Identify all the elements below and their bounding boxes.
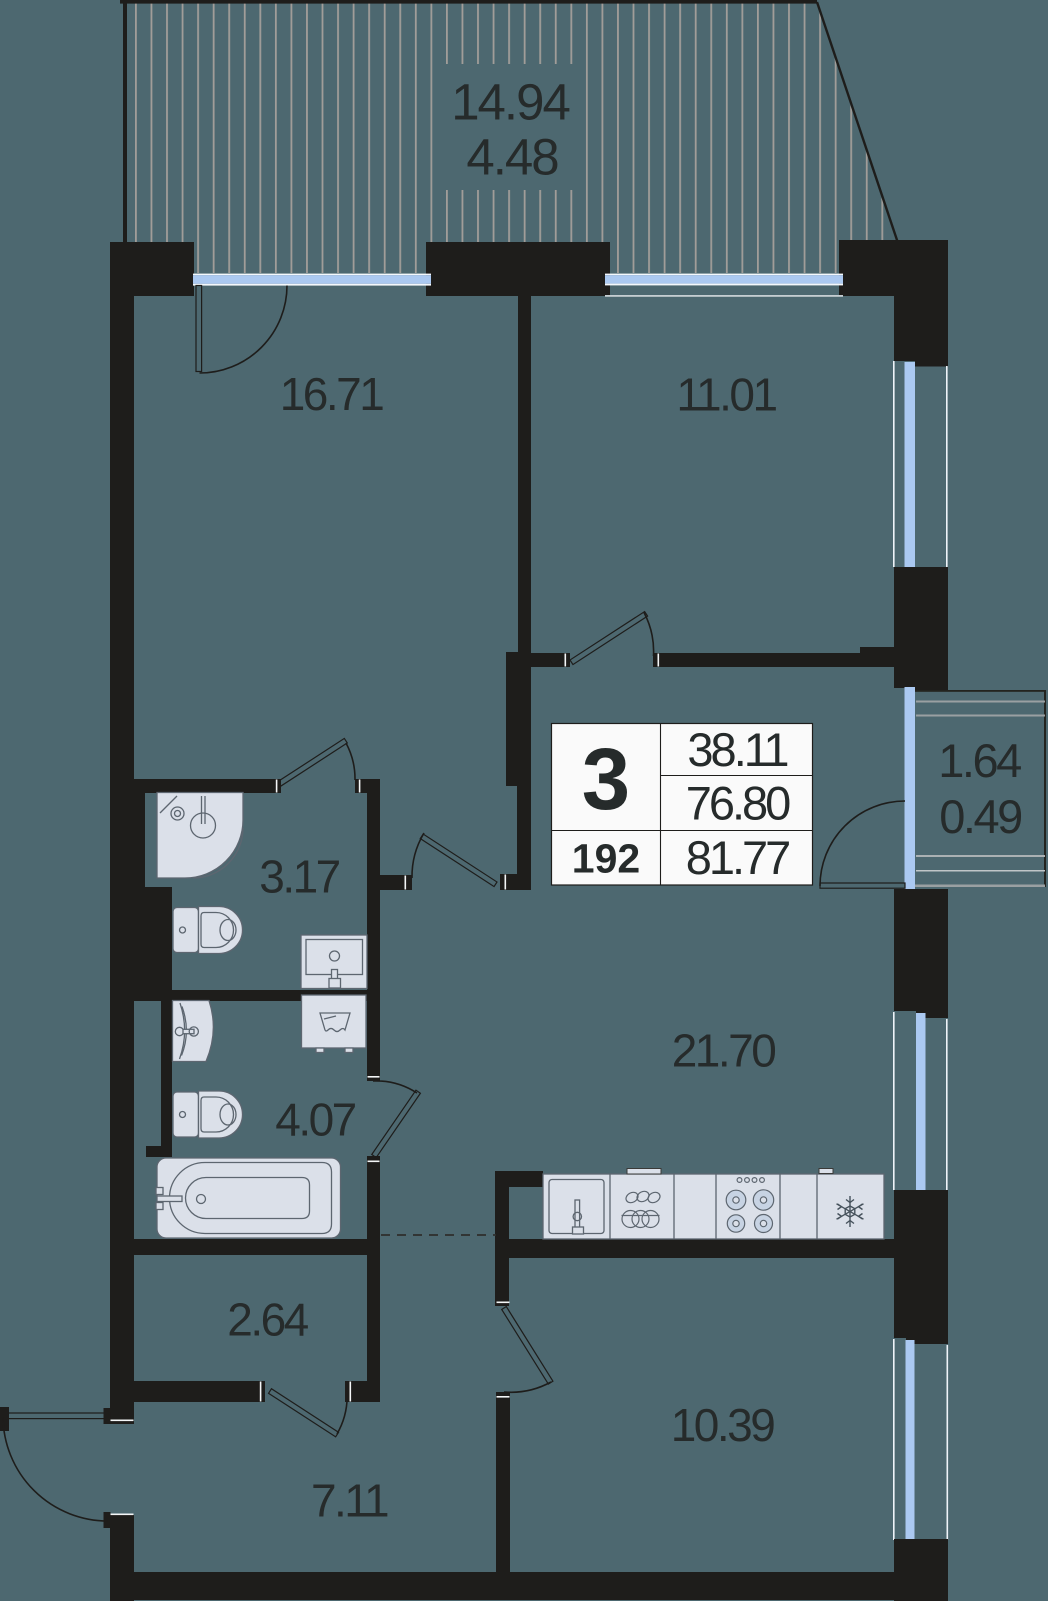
svg-text:0.49: 0.49 bbox=[939, 790, 1021, 843]
svg-text:16.71: 16.71 bbox=[280, 368, 384, 420]
svg-text:1.64: 1.64 bbox=[938, 734, 1021, 787]
svg-text:4.48: 4.48 bbox=[466, 129, 558, 186]
svg-text:4.07: 4.07 bbox=[275, 1094, 355, 1146]
svg-text:76.80: 76.80 bbox=[686, 777, 790, 830]
svg-text:81.77: 81.77 bbox=[686, 831, 789, 884]
svg-text:3: 3 bbox=[582, 731, 630, 828]
svg-text:3.17: 3.17 bbox=[259, 851, 339, 903]
svg-text:38.11: 38.11 bbox=[687, 723, 787, 776]
svg-text:10.39: 10.39 bbox=[671, 1399, 775, 1451]
svg-text:21.70: 21.70 bbox=[672, 1025, 776, 1077]
svg-text:2.64: 2.64 bbox=[227, 1294, 308, 1346]
svg-text:11.01: 11.01 bbox=[676, 369, 776, 421]
svg-text:14.94: 14.94 bbox=[451, 74, 569, 131]
svg-text:192: 192 bbox=[572, 836, 640, 882]
svg-text:7.11: 7.11 bbox=[311, 1475, 388, 1527]
